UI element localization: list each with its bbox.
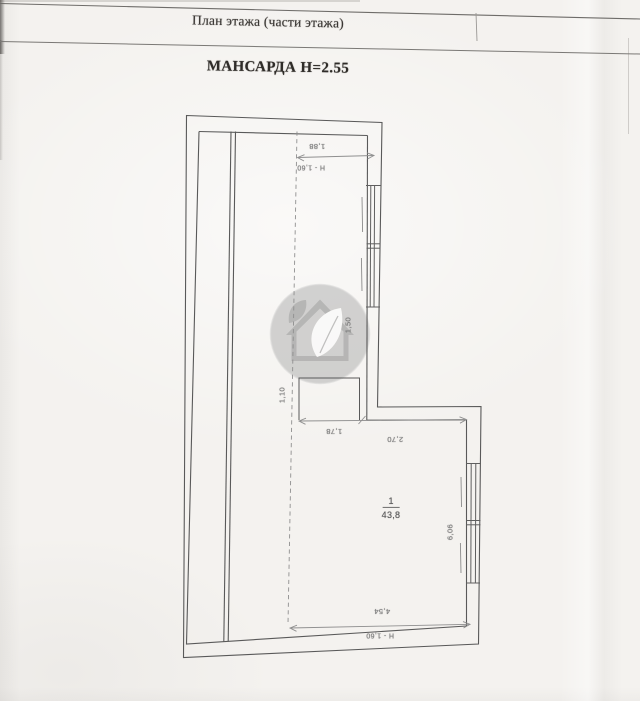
dim-label-niche-height: 1,10 bbox=[278, 387, 286, 403]
inner-wall-top bbox=[199, 132, 368, 136]
dim-label-top-width: 1,88 bbox=[309, 142, 325, 150]
inner-wall-bottom-left bbox=[187, 132, 467, 645]
floor-plan-drawing bbox=[0, 0, 640, 701]
dim-line-top bbox=[298, 156, 375, 158]
dim-label-right-height: 6,06 bbox=[446, 524, 454, 540]
room-label: 1 43,8 bbox=[382, 496, 401, 520]
dim-label-height-note-bottom: Н - 1,60 bbox=[366, 632, 394, 639]
floor-title: МАНСАРДА Н=2.55 bbox=[207, 58, 350, 77]
windows bbox=[366, 186, 481, 584]
scanned-floor-plan-page: План этажа (части этажа) МАНСАРДА Н=2.55… bbox=[0, 0, 640, 701]
dim-label-window-right: 1,50 bbox=[344, 317, 352, 333]
dim-label-bottom-width: 4,54 bbox=[374, 607, 390, 615]
plan-walls bbox=[184, 116, 482, 658]
stair-opening bbox=[299, 378, 360, 420]
inner-wall-right-upper bbox=[367, 136, 368, 421]
sill-lines bbox=[361, 197, 461, 573]
room-number: 1 bbox=[382, 496, 399, 508]
partition-wall bbox=[224, 132, 231, 642]
window-bottom-right bbox=[466, 464, 481, 584]
room-area: 43,8 bbox=[382, 508, 401, 520]
document-title: План этажа (части этажа) bbox=[192, 12, 344, 31]
watermark-logo bbox=[271, 285, 370, 384]
dim-label-height-note-top: Н - 1,60 bbox=[297, 163, 325, 170]
outer-wall bbox=[184, 116, 482, 658]
partition-wall bbox=[228, 132, 235, 642]
dim-label-mid-left: 1,78 bbox=[326, 427, 342, 435]
window-top-right bbox=[366, 186, 381, 308]
dim-label-mid-right: 2,70 bbox=[387, 435, 403, 443]
